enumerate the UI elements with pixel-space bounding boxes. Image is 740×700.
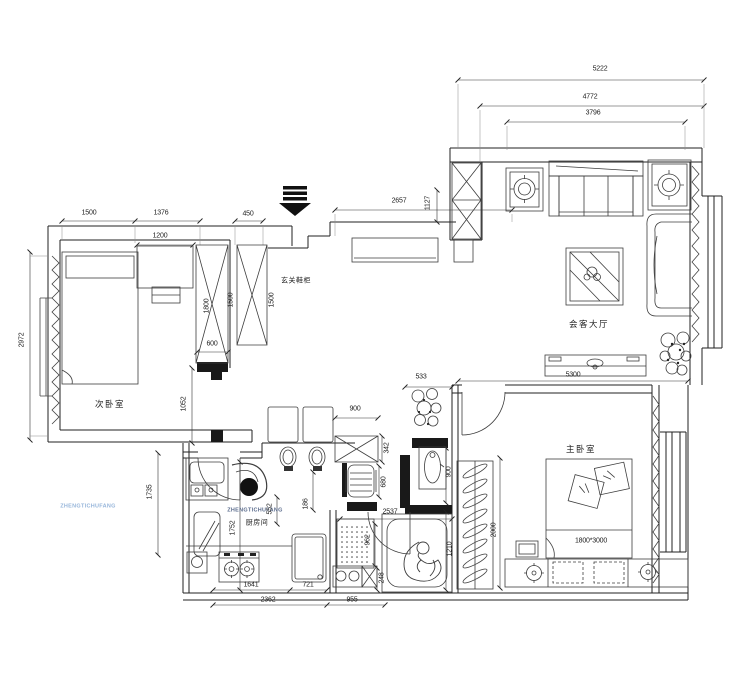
extension-lines bbox=[30, 84, 704, 436]
door-master-bedroom bbox=[462, 392, 505, 435]
bed-symbol-master bbox=[546, 459, 632, 558]
dining-table-symbol bbox=[268, 407, 333, 442]
dining-chair-symbol bbox=[280, 447, 325, 471]
stove-symbol bbox=[219, 552, 259, 582]
entry-bench-symbol bbox=[352, 238, 438, 262]
wall-entry-step bbox=[268, 222, 456, 248]
floorplan-page: 次卧室 玄关鞋柜 会客大厅 厨房间 主卧室 ZHENGTICHUFANG ZHE… bbox=[0, 0, 740, 700]
side-table-lamp-right bbox=[648, 160, 691, 210]
wall-fill bbox=[405, 505, 452, 514]
tv-cabinet-symbol bbox=[545, 355, 646, 376]
dresser-symbol bbox=[505, 559, 688, 587]
person-figure bbox=[404, 542, 441, 581]
side-table-lamp-left bbox=[506, 168, 543, 211]
radiator-band bbox=[197, 362, 228, 372]
window-frame-bedroom bbox=[40, 298, 52, 396]
cabinet-xbox-symbol bbox=[335, 436, 378, 462]
plant-symbol-living bbox=[660, 332, 691, 375]
washbasin-symbol bbox=[419, 447, 446, 489]
utility-xbox-symbol bbox=[362, 566, 377, 587]
wall-fills bbox=[197, 362, 452, 514]
furniture bbox=[62, 160, 692, 592]
utility-sink-symbol bbox=[333, 566, 362, 587]
wall-living-room bbox=[450, 148, 722, 385]
desk-symbol bbox=[137, 246, 193, 303]
wall-kitchen bbox=[183, 443, 355, 593]
wall-pier-xbox bbox=[452, 163, 481, 239]
windows bbox=[40, 166, 699, 583]
nightstand-symbol bbox=[516, 541, 538, 557]
window-zigzag-bedroom bbox=[52, 256, 59, 424]
coffee-table-symbol bbox=[566, 248, 623, 305]
wall-fill bbox=[211, 430, 223, 442]
shower-tray-symbol bbox=[337, 519, 374, 568]
sofa-symbol bbox=[549, 161, 643, 216]
wall-bottom bbox=[183, 593, 688, 600]
window-zigzag-living bbox=[692, 166, 699, 342]
wall-fill bbox=[400, 455, 410, 508]
fridge-symbol bbox=[292, 534, 326, 582]
wardrobe-hangers-symbol bbox=[457, 461, 493, 589]
entry-square-symbol bbox=[454, 240, 473, 262]
plant-symbol-nook bbox=[412, 389, 441, 427]
water-heater-symbol bbox=[346, 465, 376, 497]
shoe-cabinet-symbol bbox=[237, 245, 267, 345]
radiator-foot bbox=[211, 372, 222, 380]
wardrobe-symbol bbox=[196, 245, 228, 363]
wall-fill bbox=[412, 438, 448, 448]
wall-second-bedroom bbox=[48, 226, 292, 442]
wall-fill bbox=[347, 502, 377, 511]
cutting-board-symbol bbox=[194, 512, 220, 556]
floorplan-drawing bbox=[0, 0, 740, 700]
chaise-sofa-symbol bbox=[647, 214, 692, 316]
entrance-arrow-icon bbox=[279, 186, 311, 216]
window-zigzag-masterbedroom bbox=[653, 396, 659, 583]
bed-symbol-secondary bbox=[62, 252, 138, 384]
floor-drain-symbol bbox=[187, 552, 207, 573]
